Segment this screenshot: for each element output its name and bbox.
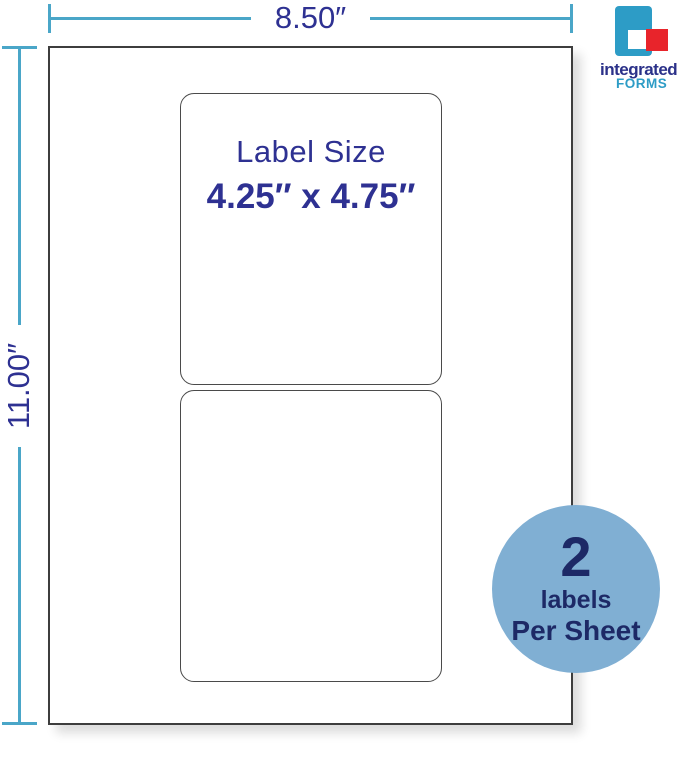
width-dimension-label: 8.50″ <box>251 0 370 36</box>
logo-wordmark-integrated: integrated <box>600 60 677 80</box>
label-bottom <box>180 390 442 682</box>
label-size-value: 4.25″ x 4.75″ <box>181 177 441 217</box>
dimension-line-segment <box>51 17 251 20</box>
badge-per-sheet-label: Per Sheet <box>511 617 640 645</box>
dimension-line-segment <box>18 49 21 325</box>
labels-per-sheet-badge: 2 labels Per Sheet <box>492 505 660 673</box>
logo-white-square-icon <box>628 30 647 49</box>
label-sheet: Label Size 4.25″ x 4.75″ <box>48 46 573 725</box>
label-top: Label Size 4.25″ x 4.75″ <box>180 93 442 385</box>
width-dimension: 8.50″ <box>48 4 573 33</box>
label-sheet-diagram: 8.50″ 11.00″ Label Size 4.25″ x 4.75″ 2 … <box>0 0 692 775</box>
logo-blue-square-icon <box>615 6 652 56</box>
dimension-line-segment <box>18 447 21 723</box>
badge-count: 2 <box>560 533 591 581</box>
logo-wordmark-forms: FORMS <box>616 76 667 91</box>
height-dimension: 11.00″ <box>2 46 37 725</box>
height-dimension-label: 11.00″ <box>2 342 38 428</box>
logo-red-square-icon <box>646 29 668 51</box>
label-size-title: Label Size <box>181 134 441 170</box>
height-dimension-label-wrap: 11.00″ <box>2 325 37 447</box>
dimension-line-segment <box>370 17 570 20</box>
dimension-endcap-right <box>570 4 573 33</box>
badge-unit-label: labels <box>541 588 612 613</box>
dimension-endcap-bottom <box>2 722 37 725</box>
